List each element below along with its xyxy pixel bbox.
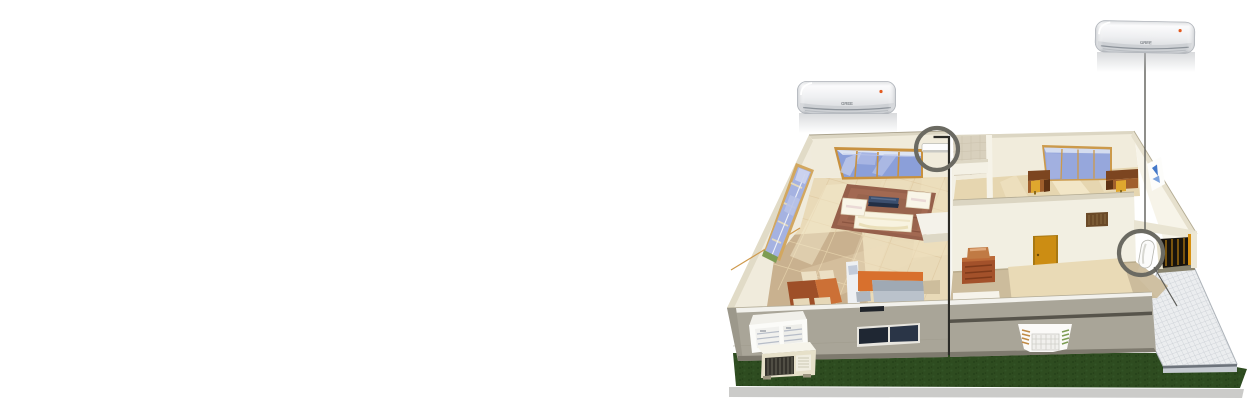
svg-text:GREE: GREE (841, 101, 853, 106)
svg-text:GREE: GREE (1140, 40, 1152, 45)
